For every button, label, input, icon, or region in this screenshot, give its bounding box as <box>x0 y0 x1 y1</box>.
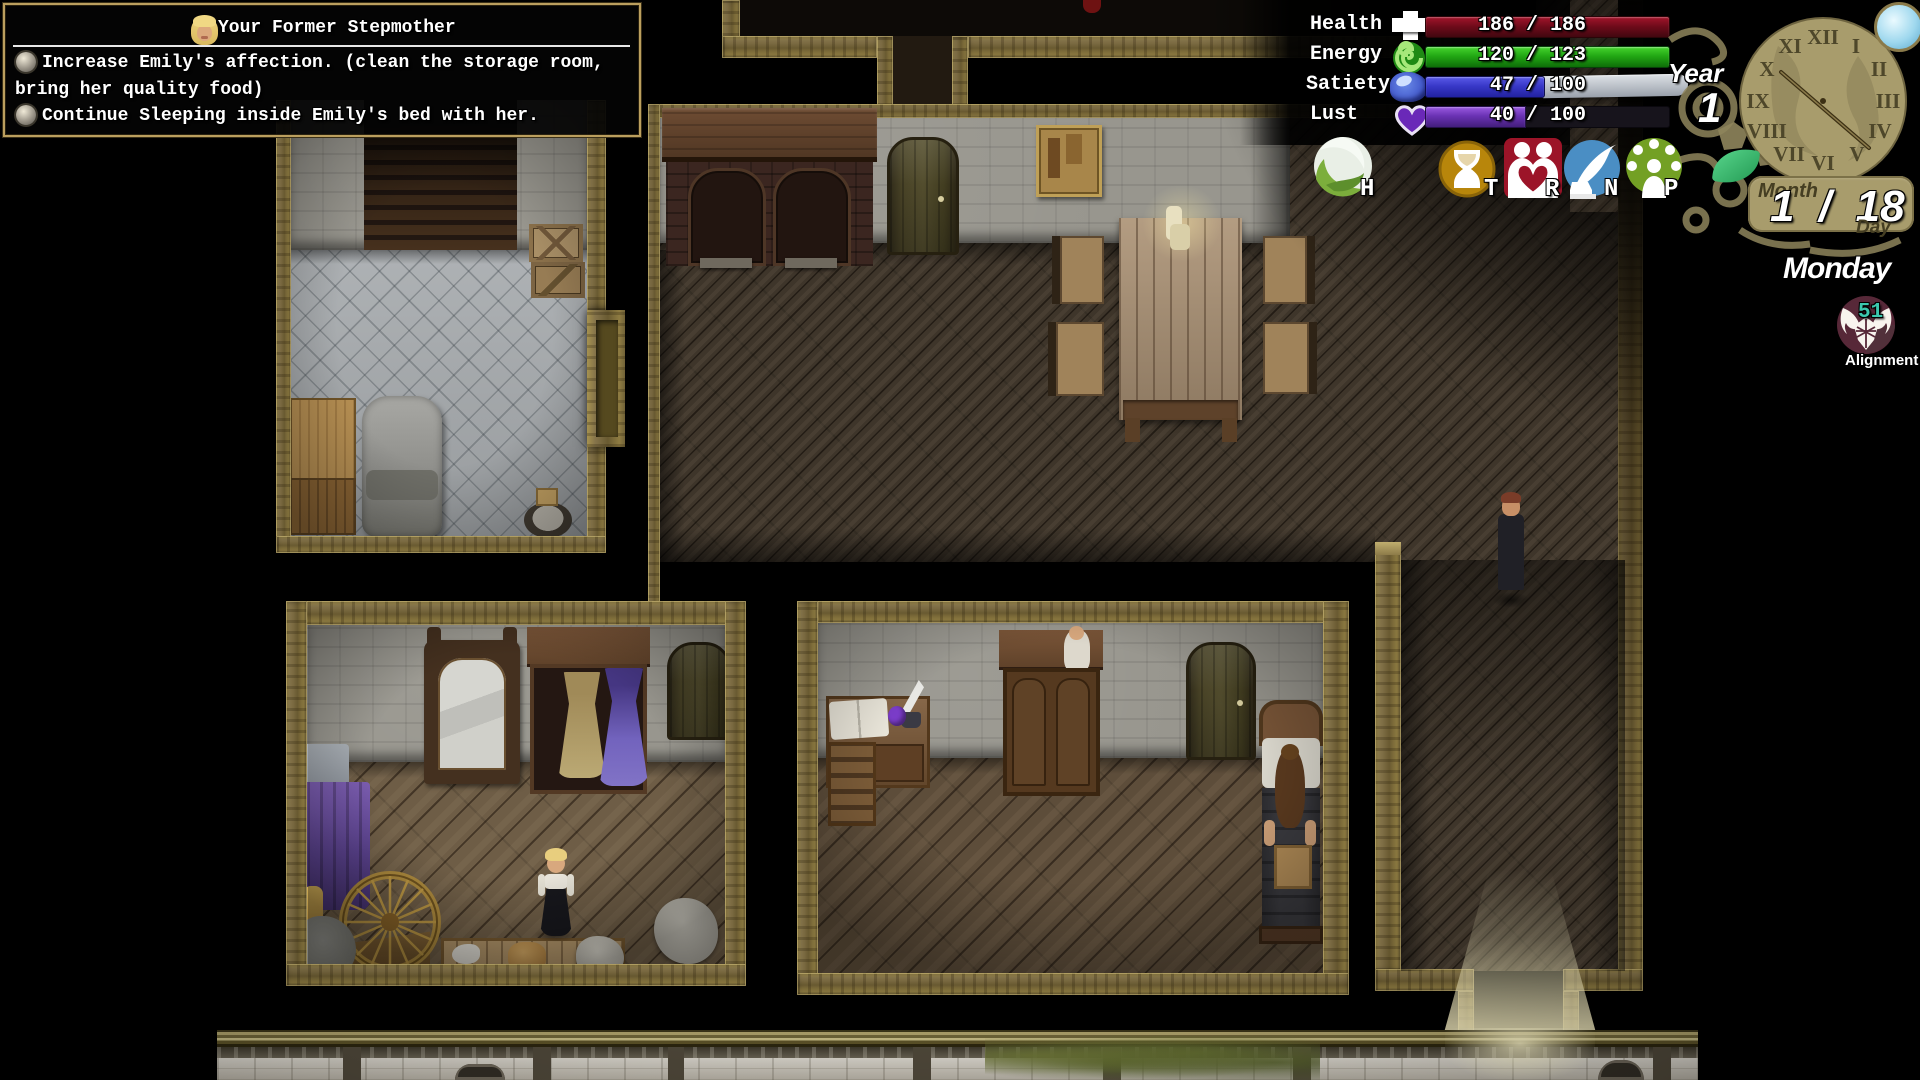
svg-text:XI: XI <box>1778 34 1801 58</box>
svg-text:III: III <box>1876 89 1901 113</box>
svg-text:V: V <box>1849 142 1864 166</box>
svg-text:VII: VII <box>1773 142 1805 166</box>
svg-text:VI: VI <box>1811 151 1834 175</box>
svg-text:XII: XII <box>1807 25 1839 49</box>
svg-text:II: II <box>1871 57 1887 81</box>
svg-text:I: I <box>1852 34 1860 58</box>
svg-text:IX: IX <box>1746 89 1769 113</box>
svg-text:VIII: VIII <box>1747 119 1787 143</box>
svg-text:X: X <box>1759 57 1774 81</box>
svg-text:IV: IV <box>1868 119 1891 143</box>
